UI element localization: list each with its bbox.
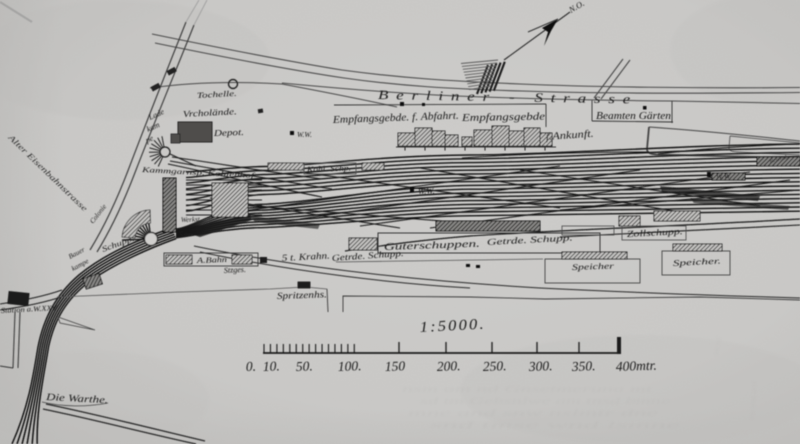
svg-text:Spritzenhs.: Spritzenhs. bbox=[277, 290, 327, 302]
svg-text:400mtr.: 400mtr. bbox=[616, 358, 657, 374]
svg-text:0.: 0. bbox=[246, 359, 257, 374]
svg-text:nsm am nd Gnsetmeruna mt: nsm am nd Gnsetmeruna mt bbox=[402, 385, 653, 395]
svg-text:Empfangsgebde: Empfangsgebde bbox=[461, 112, 546, 124]
svg-text:W.W.: W.W. bbox=[716, 171, 732, 181]
svg-text:Werkst.: Werkst. bbox=[181, 215, 202, 224]
svg-text:100.: 100. bbox=[338, 358, 362, 374]
svg-text:Speicher: Speicher bbox=[572, 261, 615, 272]
svg-text:300.: 300. bbox=[528, 358, 553, 374]
svg-text:mne and snw nslmtr dne: mne and snw nslmtr dne bbox=[408, 409, 658, 419]
svg-text:snd tmse wnd lsmne: snd tmse wnd lsmne bbox=[430, 421, 680, 431]
svg-text:150: 150 bbox=[385, 358, 406, 374]
svg-text:350.: 350. bbox=[571, 358, 596, 374]
svg-text:W.W.: W.W. bbox=[297, 130, 312, 139]
svg-text:Kohl. Schp.: Kohl. Schp. bbox=[306, 163, 351, 174]
svg-text:W.W.: W.W. bbox=[418, 185, 435, 196]
svg-text:A.Bahn: A.Bahn bbox=[195, 255, 227, 265]
svg-text:50.: 50. bbox=[296, 358, 313, 374]
svg-text:Depot.: Depot. bbox=[212, 127, 244, 138]
svg-text:sd tm Gebsnlwe am tnsd bmne: sd tm Gebsnlwe am tnsd bmne bbox=[420, 397, 670, 407]
svg-text:Beamten Gärten: Beamten Gärten bbox=[596, 111, 671, 122]
svg-text:Stzges.: Stzges. bbox=[224, 265, 246, 275]
svg-text:200.: 200. bbox=[437, 358, 461, 374]
svg-text:10.: 10. bbox=[263, 358, 280, 374]
svg-text:250.: 250. bbox=[483, 358, 507, 374]
